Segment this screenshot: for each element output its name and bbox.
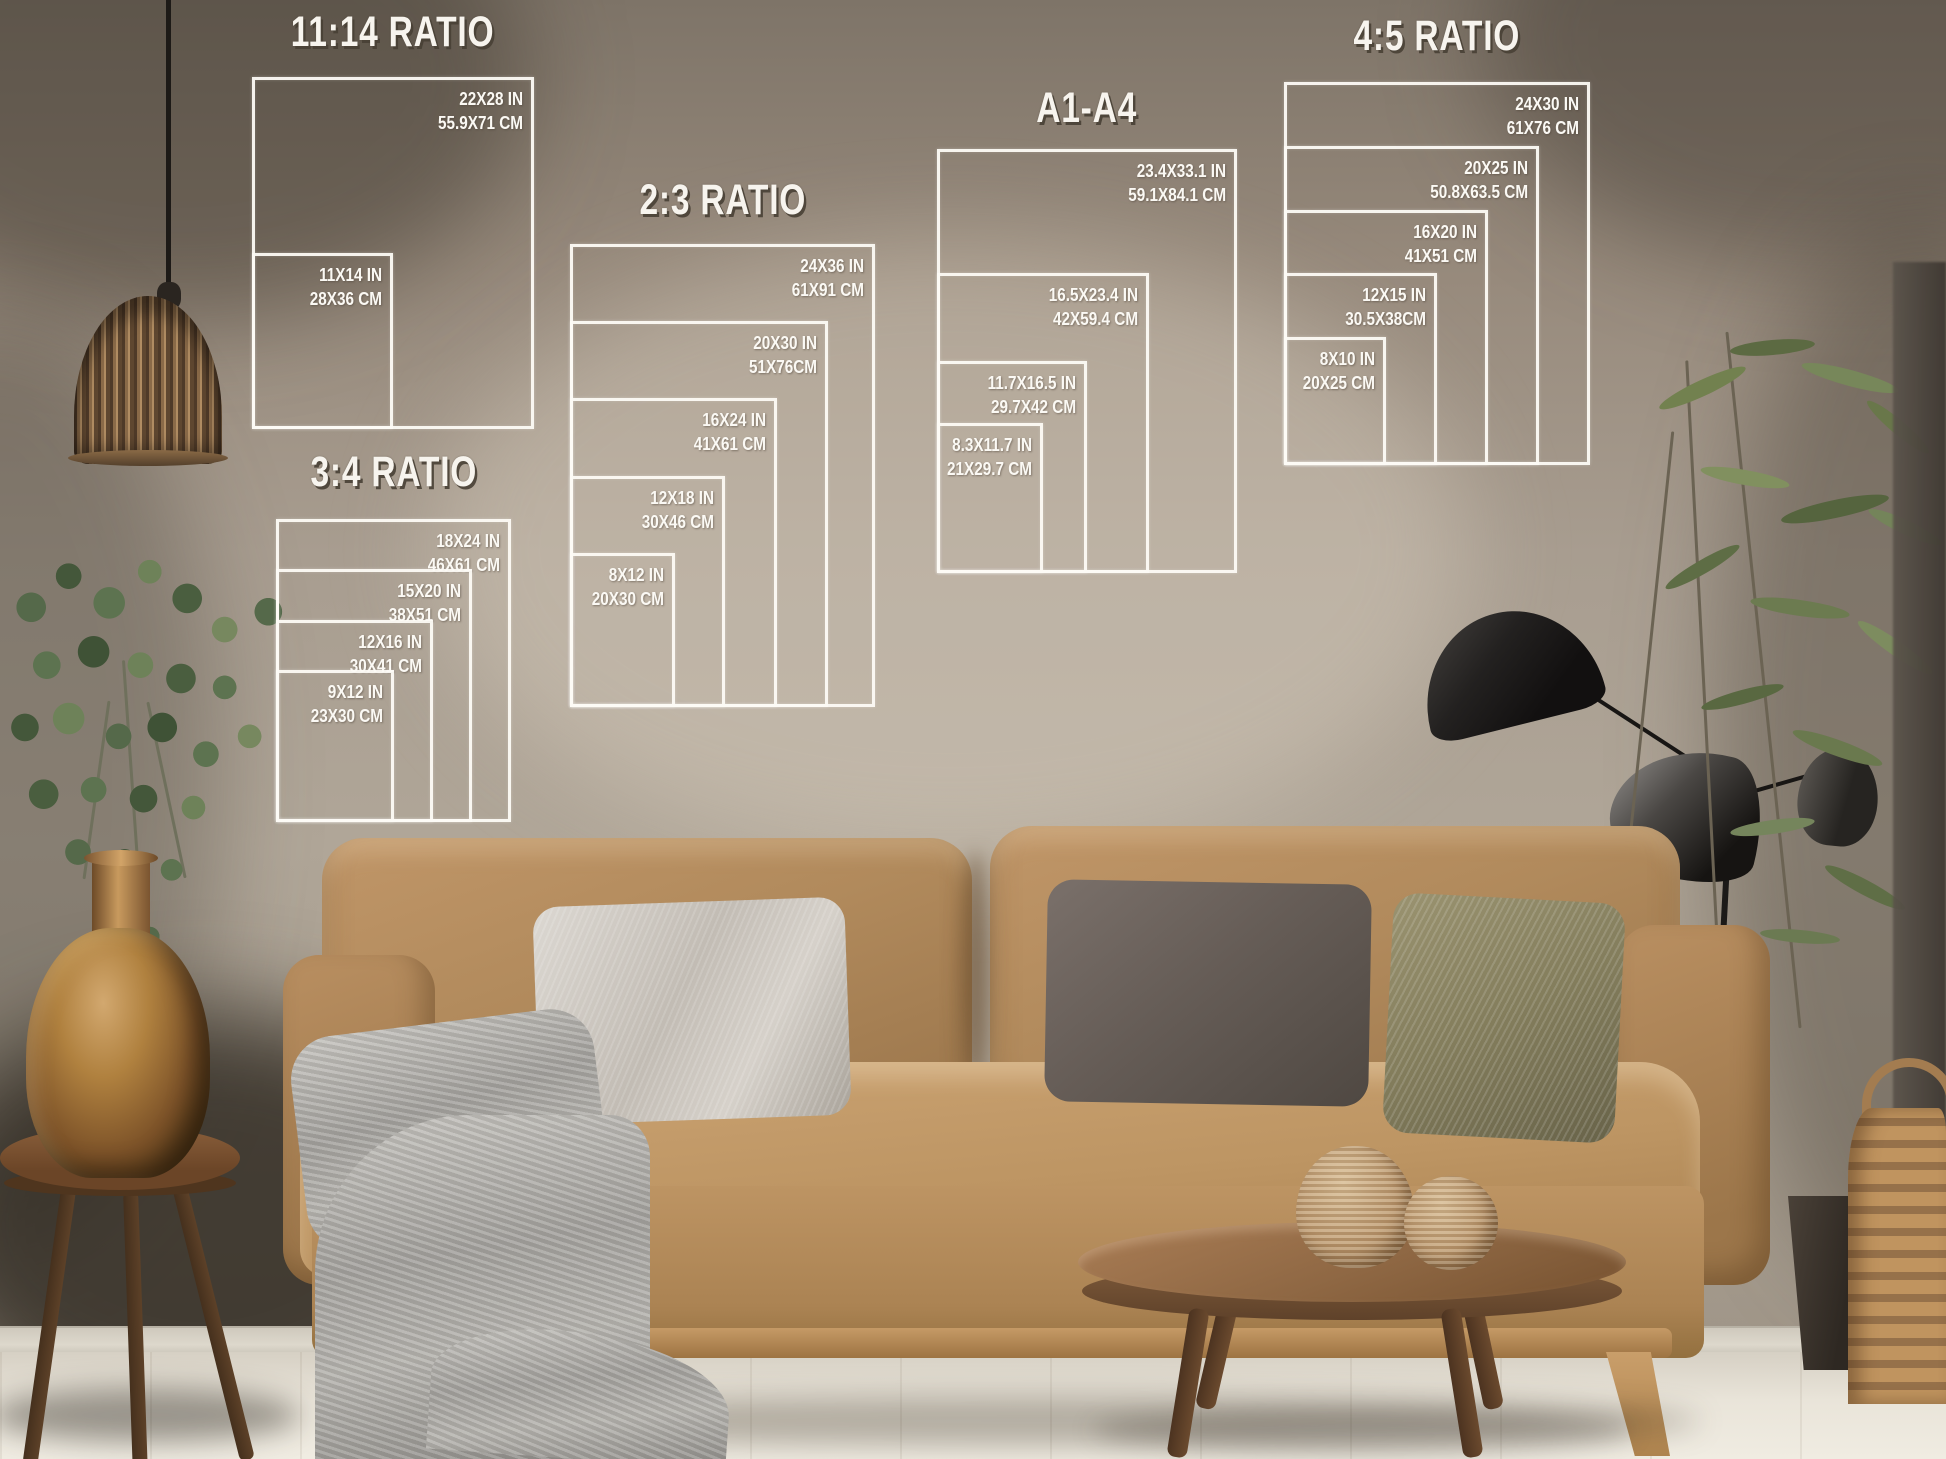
size-label: 11.7X16.5 IN29.7X42 CM bbox=[988, 372, 1076, 420]
size-label: 20X30 IN51X76CM bbox=[749, 332, 817, 380]
size-label: 9X12 IN23X30 CM bbox=[311, 681, 383, 729]
size-chart-2-3: 2:3 RATIO 24X36 IN61X91 CM 20X30 IN51X76… bbox=[570, 176, 875, 716]
living-room-size-guide: 11:14 RATIO 22X28 IN55.9X71 CM 11X14 IN2… bbox=[0, 0, 1946, 1459]
size-label: 8X12 IN20X30 CM bbox=[592, 564, 664, 612]
vase-weave-texture bbox=[1404, 1176, 1498, 1270]
pillow-dark-gray bbox=[1044, 879, 1372, 1107]
size-label: 11X14 IN28X36 CM bbox=[310, 264, 382, 312]
size-label: 16X24 IN41X61 CM bbox=[694, 409, 766, 457]
pillow-olive bbox=[1382, 892, 1626, 1144]
chart-title: 3:4 RATIO bbox=[276, 448, 511, 497]
decor-vase-small bbox=[1404, 1176, 1498, 1270]
size-chart-11-14: 11:14 RATIO 22X28 IN55.9X71 CM 11X14 IN2… bbox=[252, 8, 534, 438]
pendant-rim bbox=[68, 450, 228, 466]
vase-weave-texture bbox=[1296, 1146, 1414, 1268]
size-label: 24X30 IN61X76 CM bbox=[1507, 93, 1579, 141]
wicker-basket bbox=[1848, 1108, 1946, 1404]
size-rect: 8.3X11.7 IN21X29.7 CM bbox=[937, 423, 1043, 573]
size-rect: 8X10 IN20X25 CM bbox=[1284, 337, 1386, 465]
size-label: 12X18 IN30X46 CM bbox=[642, 487, 714, 535]
size-chart-3-4: 3:4 RATIO 18X24 IN46X61 CM 15X20 IN38X51… bbox=[276, 448, 511, 828]
size-rect: 8X12 IN20X30 CM bbox=[570, 553, 675, 707]
chart-title: 4:5 RATIO bbox=[1284, 12, 1590, 61]
size-chart-a1-a4: A1-A4 23.4X33.1 IN59.1X84.1 CM 16.5X23.4… bbox=[937, 84, 1237, 584]
chart-title: A1-A4 bbox=[937, 84, 1237, 133]
sofa-cushion-gap bbox=[962, 852, 988, 1092]
size-label: 22X28 IN55.9X71 CM bbox=[438, 88, 523, 136]
size-chart-4-5: 4:5 RATIO 24X30 IN61X76 CM 20X25 IN50.8X… bbox=[1284, 12, 1590, 472]
brass-vase bbox=[26, 928, 210, 1178]
size-label: 8.3X11.7 IN21X29.7 CM bbox=[947, 434, 1032, 482]
size-label: 16.5X23.4 IN42X59.4 CM bbox=[1049, 284, 1138, 332]
size-label: 24X36 IN61X91 CM bbox=[792, 255, 864, 303]
size-label: 12X15 IN30.5X38CM bbox=[1345, 284, 1426, 332]
pillow-texture bbox=[1382, 892, 1626, 1144]
size-rect: 11X14 IN28X36 CM bbox=[252, 253, 393, 429]
size-label: 20X25 IN50.8X63.5 CM bbox=[1430, 157, 1528, 205]
size-rect: 9X12 IN23X30 CM bbox=[276, 670, 394, 822]
size-label: 16X20 IN41X51 CM bbox=[1405, 221, 1477, 269]
eucalyptus-plant bbox=[0, 545, 312, 990]
chart-title: 11:14 RATIO bbox=[252, 8, 534, 57]
pendant-cord bbox=[166, 0, 171, 294]
size-label: 8X10 IN20X25 CM bbox=[1303, 348, 1375, 396]
decor-vase-large bbox=[1296, 1146, 1414, 1268]
chart-title: 2:3 RATIO bbox=[570, 176, 875, 225]
brass-vase-lip bbox=[84, 850, 158, 866]
size-label: 23.4X33.1 IN59.1X84.1 CM bbox=[1128, 160, 1226, 208]
